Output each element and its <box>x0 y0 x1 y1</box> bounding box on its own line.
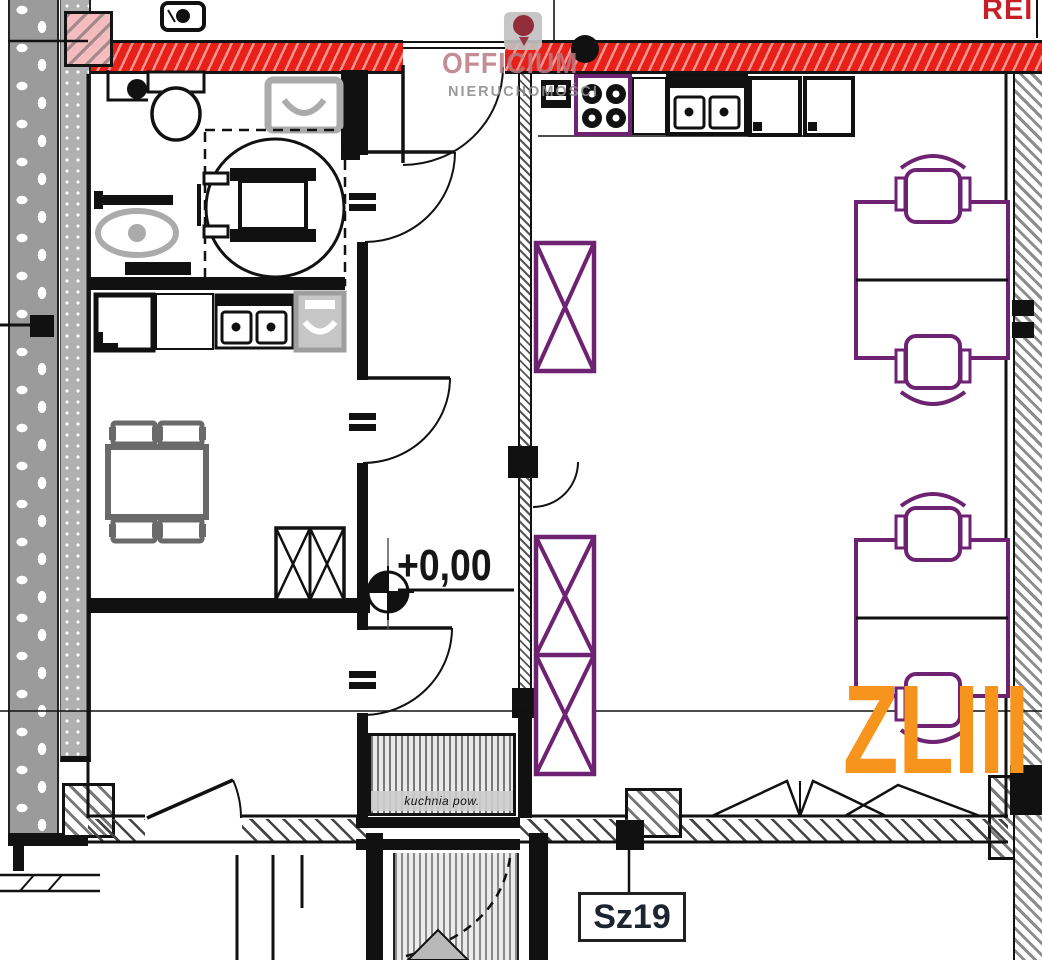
office-chair-icon <box>906 336 960 388</box>
washer-icon-gray <box>296 293 344 350</box>
cabinet <box>633 78 666 134</box>
turning-area-dashed <box>205 130 345 285</box>
radiator <box>125 262 191 275</box>
chair-icon <box>156 520 206 541</box>
wardrobe-x-purple-1 <box>536 243 594 371</box>
floor-plan: REI 1 ZLIII +0,00 Sz19 kuchnia pow. OFFI… <box>0 0 1042 960</box>
table-group <box>108 423 206 541</box>
fire-zone-label: ZLIII <box>843 678 1029 781</box>
bathroom-fixtures <box>94 70 345 285</box>
stair-grate-lower <box>393 853 519 960</box>
storage-cabinets <box>276 243 594 774</box>
bottom-wall-hatch-3 <box>520 819 628 841</box>
lintel-line <box>403 41 505 43</box>
watermark-pin-tip-icon <box>519 37 529 46</box>
room-tag: Sz19 <box>578 892 686 942</box>
fridge-icon <box>96 295 153 350</box>
watermark-subtitle: NIERUCHOMOŚCI <box>448 84 599 100</box>
desk-cluster-1 <box>856 156 1008 404</box>
bottom-wall-hatch-4 <box>682 819 1008 841</box>
table-icon <box>108 447 206 517</box>
pier-bottom-mid <box>625 788 682 838</box>
double-sink-icon <box>216 295 293 348</box>
watermark-title: OFFICIUM <box>442 48 578 81</box>
chair-icon <box>109 520 159 541</box>
watermark-pin-icon <box>513 15 534 36</box>
kitchenette-left <box>96 293 344 350</box>
grab-bar <box>99 195 173 205</box>
office-chair-icon <box>906 508 960 560</box>
wardrobe-x-black <box>276 528 344 600</box>
sink-icon-gray <box>268 80 340 130</box>
bottom-wall-hatch-2 <box>242 819 368 841</box>
washbasin-icon <box>98 211 176 255</box>
double-sink-icon <box>668 75 746 134</box>
structural-column <box>64 11 113 67</box>
wheelchair-icon <box>199 168 316 242</box>
level-marker-label: +0,00 <box>397 541 492 591</box>
toilet-icon <box>148 72 204 92</box>
bottom-wall-hatch-1 <box>88 819 145 841</box>
corridor-right-wall <box>518 74 532 690</box>
stair-note: kuchnia pow. <box>371 791 513 811</box>
chair-icon <box>109 423 159 444</box>
door-frame-marks <box>349 193 376 689</box>
room-tag-text: Sz19 <box>593 898 671 937</box>
exterior-wall-right <box>1013 74 1042 960</box>
cabinet <box>156 294 213 349</box>
meter-icon <box>162 3 204 30</box>
office-chair-icon <box>906 170 960 222</box>
chair-icon <box>156 423 206 444</box>
desk-clusters <box>856 156 1008 742</box>
fire-rating-label: REI 1 <box>982 0 1042 27</box>
exterior-wall-left-outer <box>8 0 59 833</box>
counter-cabinet <box>750 78 800 135</box>
wardrobe-x-purple-2 <box>536 537 594 774</box>
wheelchair-turning-circle <box>206 139 344 277</box>
exterior-wall-left-inner <box>60 0 91 762</box>
counter-cabinet <box>805 78 853 135</box>
